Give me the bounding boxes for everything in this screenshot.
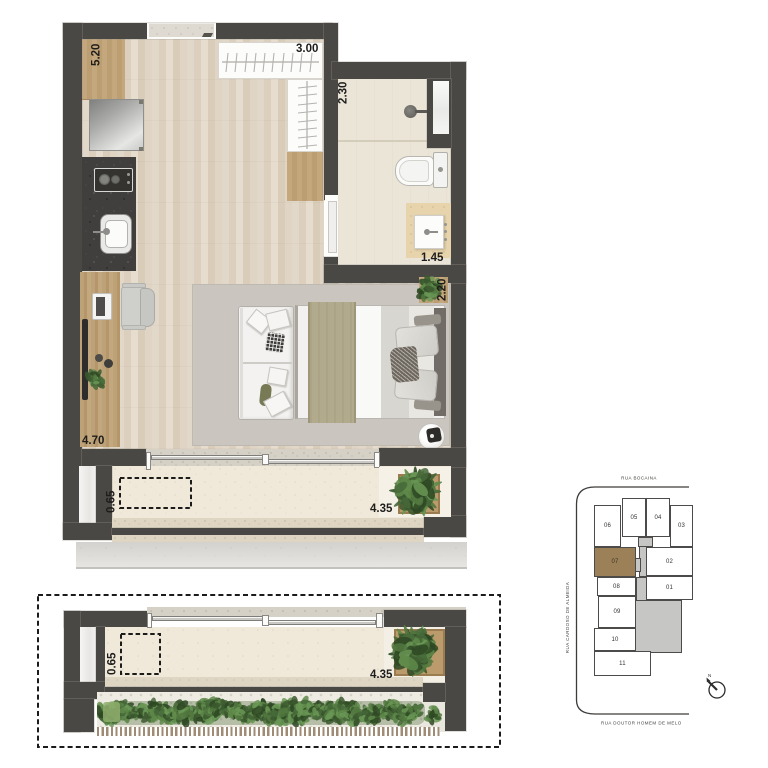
svg-text:N: N xyxy=(708,673,711,678)
